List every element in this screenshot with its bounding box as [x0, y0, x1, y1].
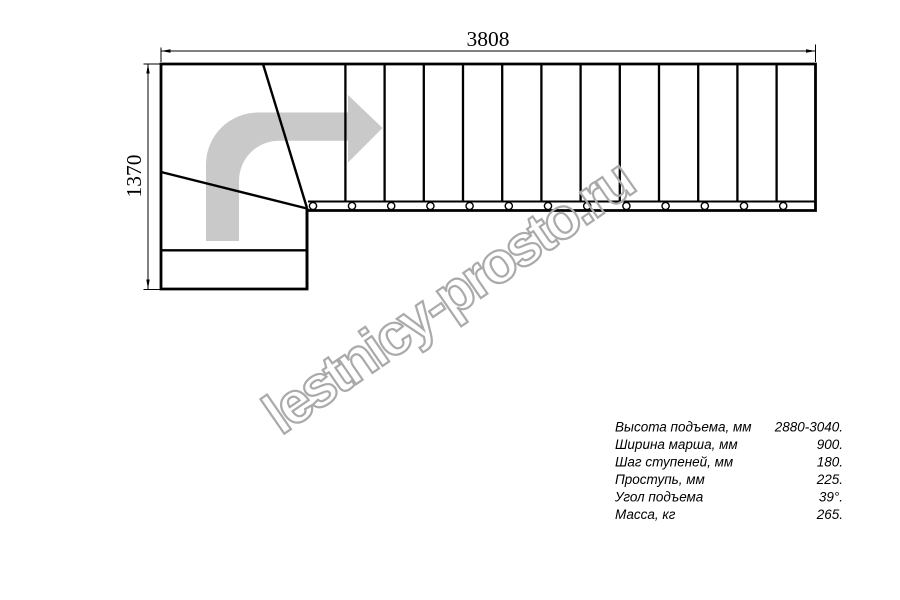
- svg-text:39°.: 39°.: [819, 490, 843, 505]
- svg-text:Масса, кг: Масса, кг: [615, 507, 676, 522]
- svg-text:lestnicy-prosto.ru: lestnicy-prosto.ru: [251, 148, 644, 447]
- svg-text:225.: 225.: [816, 472, 843, 487]
- svg-text:180.: 180.: [817, 455, 843, 470]
- svg-text:Проступь, мм: Проступь, мм: [615, 472, 705, 487]
- svg-text:3808: 3808: [467, 27, 510, 51]
- svg-text:265.: 265.: [816, 507, 843, 522]
- svg-text:900.: 900.: [817, 437, 843, 452]
- svg-text:Ширина марша, мм: Ширина марша, мм: [615, 437, 738, 452]
- svg-text:Шаг ступеней, мм: Шаг ступеней, мм: [615, 455, 733, 470]
- svg-text:Угол подъема: Угол подъема: [614, 490, 704, 505]
- svg-text:1370: 1370: [122, 155, 146, 198]
- svg-text:Высота подъема, мм: Высота подъема, мм: [615, 420, 751, 435]
- svg-text:2880-3040.: 2880-3040.: [774, 420, 843, 435]
